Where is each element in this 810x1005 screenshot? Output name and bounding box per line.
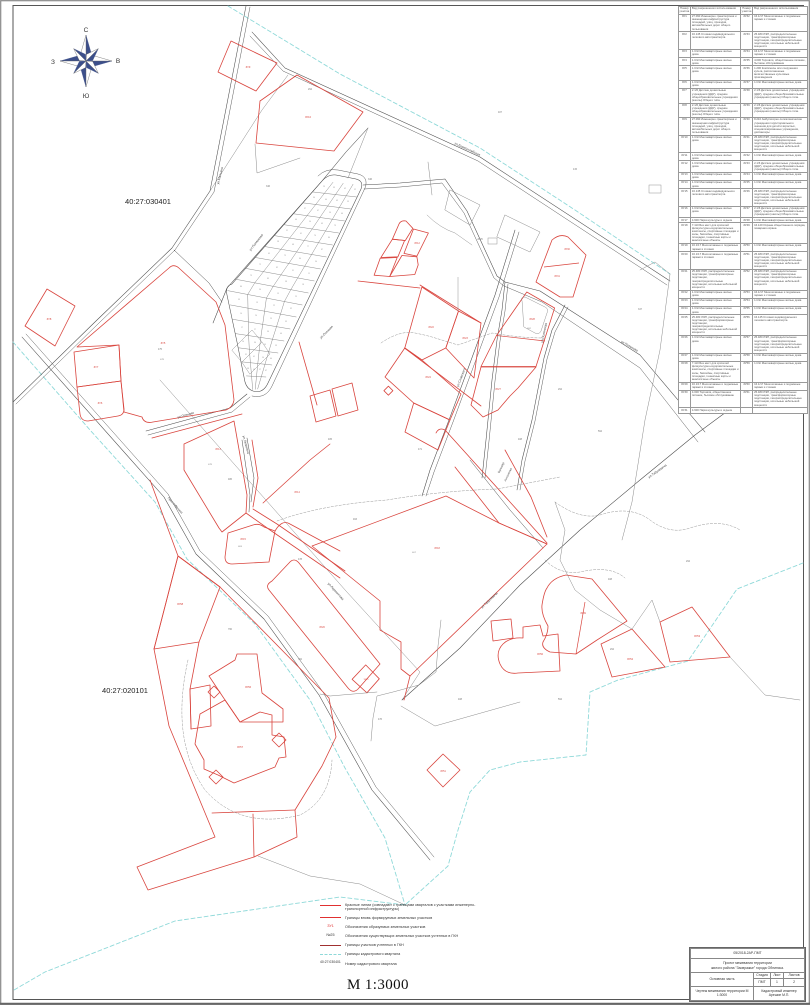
svg-text:50: 50	[262, 357, 264, 359]
svg-text:ЗУ14: ЗУ14	[294, 491, 300, 494]
svg-text:ул.Табулевича: ул.Табулевича	[480, 591, 499, 609]
svg-text:ЗУ56: ЗУ56	[245, 685, 252, 689]
svg-text:59: 59	[347, 201, 349, 203]
svg-text:63: 63	[321, 223, 323, 225]
svg-text:13: 13	[256, 302, 258, 304]
svg-text:41: 41	[253, 356, 255, 358]
svg-text:294: 294	[558, 388, 563, 391]
svg-text:25: 25	[295, 296, 297, 298]
svg-text:294: 294	[308, 88, 313, 91]
svg-text:ЗУ24: ЗУ24	[425, 376, 431, 379]
svg-text:40: 40	[325, 199, 327, 201]
svg-text:68: 68	[292, 244, 294, 246]
svg-text:ул.Мальяна: ул.Мальяна	[216, 167, 224, 185]
svg-text:70: 70	[314, 235, 316, 237]
svg-text:29: 29	[270, 318, 272, 320]
svg-text:46: 46	[280, 333, 282, 335]
svg-text:54: 54	[309, 221, 311, 223]
svg-text:463: 463	[353, 518, 358, 521]
svg-text:27: 27	[254, 329, 256, 331]
svg-text:67: 67	[265, 370, 267, 372]
svg-text:ЗУ20: ЗУ20	[319, 626, 325, 629]
svg-text:82: 82	[276, 267, 278, 269]
svg-text:98: 98	[285, 281, 287, 283]
svg-text:В: В	[116, 58, 120, 65]
svg-text:23: 23	[323, 186, 325, 188]
svg-text:60: 60	[270, 358, 272, 360]
svg-text:22: 22	[273, 305, 275, 307]
svg-text:80: 80	[328, 237, 330, 239]
svg-text:40:27:030401: 40:27:030401	[125, 197, 171, 206]
svg-text:Ю: Ю	[83, 93, 90, 100]
svg-text:ЗУ58: ЗУ58	[177, 602, 184, 606]
svg-text:11: 11	[308, 273, 310, 275]
svg-text:ЗУ13: ЗУ13	[215, 448, 221, 451]
svg-text:762: 762	[298, 658, 303, 661]
svg-text:42: 42	[344, 188, 346, 190]
svg-text:760: 760	[228, 628, 233, 631]
svg-text:ЗУ28: ЗУ28	[529, 318, 535, 321]
svg-text:86: 86	[240, 286, 242, 288]
svg-text:96: 96	[259, 289, 261, 291]
svg-text:С: С	[84, 27, 89, 34]
svg-text:ЗУ15: ЗУ15	[240, 538, 246, 541]
svg-text:ЗУ23: ЗУ23	[462, 337, 468, 340]
svg-text:594: 594	[598, 430, 603, 433]
svg-text:ул.Лермонтова: ул.Лермонтова	[327, 582, 345, 601]
svg-text:37: 37	[304, 208, 306, 210]
svg-text:ЗУ6: ЗУ6	[98, 401, 103, 405]
svg-text:478: 478	[298, 558, 303, 561]
svg-text:З: З	[51, 59, 55, 66]
svg-text:77: 77	[307, 246, 309, 248]
svg-text:ЗУ31: ЗУ31	[554, 275, 560, 278]
svg-text:89: 89	[267, 278, 269, 280]
svg-text:ЗУ50: ЗУ50	[537, 652, 544, 656]
svg-text:30: 30	[313, 197, 315, 199]
svg-text:65: 65	[268, 253, 270, 255]
svg-text:61: 61	[300, 233, 302, 235]
svg-text:ул.Осенняя: ул.Осенняя	[319, 325, 334, 340]
svg-text:56: 56	[329, 212, 331, 214]
svg-text:347: 347	[638, 308, 643, 311]
svg-text:ЗУ8: ЗУ8	[47, 317, 52, 321]
svg-text:ЗУ22: ЗУ22	[428, 326, 434, 329]
svg-text:31: 31	[245, 354, 247, 356]
svg-text:408: 408	[458, 698, 463, 701]
svg-text:87: 87	[321, 249, 323, 251]
svg-text:ул.Борисоглебская: ул.Борисоглебская	[454, 141, 481, 157]
svg-text:91: 91	[292, 270, 294, 272]
svg-text:ЗУ51: ЗУ51	[440, 770, 446, 773]
svg-text:44: 44	[295, 219, 297, 221]
svg-text:15: 15	[277, 293, 279, 295]
svg-text:475: 475	[158, 348, 163, 351]
svg-text:405: 405	[328, 438, 333, 441]
svg-text:Бульвар: Бульвар	[497, 461, 506, 473]
svg-text:ЗУ52: ЗУ52	[627, 657, 634, 661]
svg-text:72: 72	[259, 264, 261, 266]
svg-text:10: 10	[240, 313, 242, 315]
svg-text:408: 408	[518, 438, 523, 441]
svg-text:34: 34	[254, 342, 256, 344]
svg-text:346: 346	[266, 185, 271, 188]
svg-text:476: 476	[378, 718, 383, 721]
svg-text:40:27:020101: 40:27:020101	[102, 686, 148, 695]
svg-text:36: 36	[267, 331, 269, 333]
svg-text:51: 51	[286, 230, 288, 232]
svg-text:ЗУ10: ЗУ10	[305, 115, 312, 119]
svg-text:39: 39	[285, 321, 287, 323]
svg-text:93: 93	[238, 299, 240, 301]
svg-text:2025: 2025	[477, 238, 483, 241]
svg-text:32: 32	[290, 308, 292, 310]
svg-text:49: 49	[336, 200, 338, 202]
svg-text:ЗУ18: ЗУ18	[434, 547, 440, 550]
svg-text:ЗУ12: ЗУ12	[414, 242, 420, 245]
svg-text:478: 478	[160, 359, 164, 361]
svg-text:17: 17	[241, 327, 243, 329]
svg-text:ЗУ27: ЗУ27	[495, 388, 501, 391]
svg-text:ул.Поленова: ул.Поленова	[620, 340, 639, 353]
svg-text:24: 24	[242, 341, 244, 343]
svg-text:415: 415	[573, 168, 578, 171]
svg-text:79: 79	[250, 275, 252, 277]
svg-text:294: 294	[686, 560, 691, 563]
svg-text:471: 471	[418, 448, 423, 451]
svg-text:52: 52	[354, 189, 356, 191]
svg-text:18: 18	[302, 284, 304, 286]
svg-text:478: 478	[208, 464, 212, 466]
svg-text:47: 47	[317, 210, 319, 212]
svg-text:ЗУ57: ЗУ57	[237, 745, 244, 749]
svg-text:486: 486	[228, 478, 233, 481]
svg-text:407: 407	[498, 111, 503, 114]
svg-text:ЗУ53: ЗУ53	[694, 634, 701, 638]
svg-text:94: 94	[315, 261, 317, 263]
svg-text:408: 408	[608, 578, 613, 581]
svg-text:ЗУ5: ЗУ5	[161, 341, 166, 345]
svg-text:346: 346	[368, 178, 373, 181]
svg-text:294: 294	[610, 648, 615, 651]
svg-text:20: 20	[255, 315, 257, 317]
svg-text:33: 33	[333, 187, 335, 189]
svg-text:ЗУ7: ЗУ7	[94, 365, 99, 369]
svg-text:58: 58	[277, 241, 279, 243]
svg-text:66: 66	[341, 213, 343, 215]
svg-text:ул.Осенняя: ул.Осенняя	[177, 411, 195, 420]
svg-text:ЗУ9: ЗУ9	[246, 65, 251, 69]
svg-text:ЗУ49: ЗУ49	[580, 612, 586, 615]
svg-text:73: 73	[334, 225, 336, 227]
svg-text:57: 57	[259, 369, 261, 371]
svg-text:ЗУ30: ЗУ30	[564, 248, 570, 251]
svg-text:53: 53	[275, 345, 277, 347]
svg-text:594: 594	[558, 698, 563, 701]
svg-text:Антоненко: Антоненко	[503, 467, 513, 482]
svg-text:84: 84	[299, 258, 301, 260]
svg-text:75: 75	[284, 255, 286, 257]
svg-text:463: 463	[238, 546, 242, 548]
svg-text:ЗУ21: ЗУ21	[363, 679, 369, 681]
svg-text:407: 407	[412, 552, 416, 554]
